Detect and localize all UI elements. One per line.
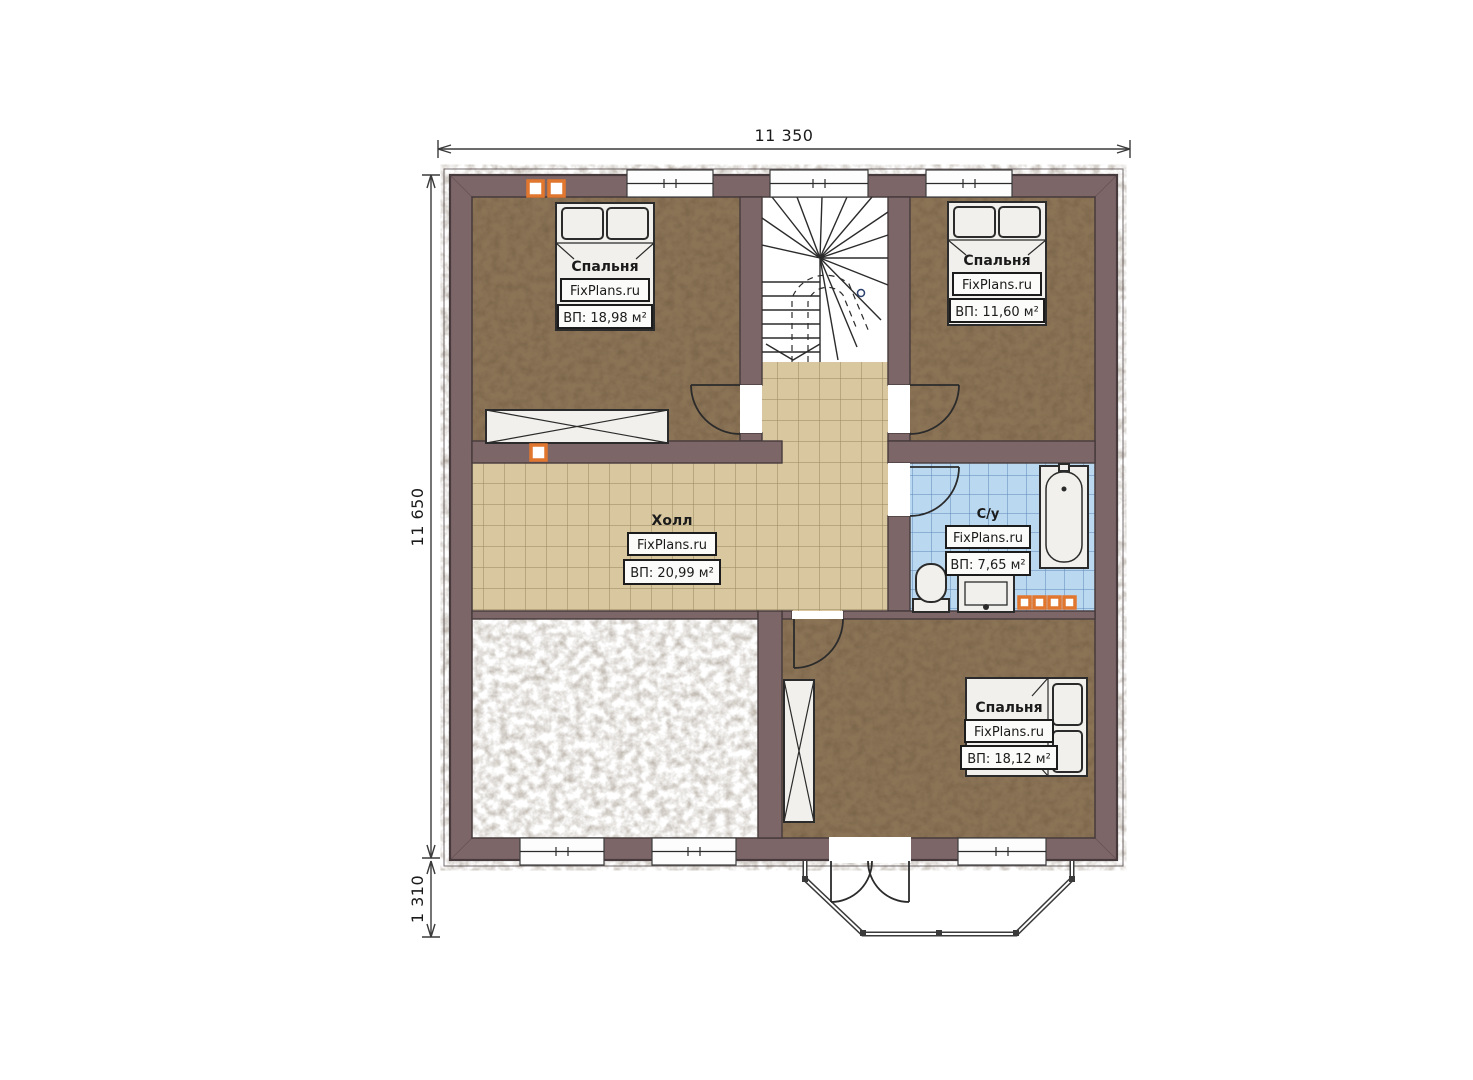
room-watermark: FixPlans.ru: [637, 538, 707, 553]
dimension-top-label: 11 350: [755, 126, 814, 145]
window-top-3: [926, 170, 1012, 197]
room-area: ВП: 11,60 м²: [955, 305, 1039, 320]
toilet-symbol: [913, 564, 949, 612]
bay-door-opening: [829, 837, 911, 863]
wardrobe-bottom-right: [784, 680, 814, 822]
room-name: Холл: [652, 513, 693, 529]
pillow: [562, 208, 603, 239]
bay-double-door: [831, 861, 909, 902]
pillow: [954, 207, 995, 237]
window-top-2: [770, 170, 868, 197]
dimension-left-label: 11 650: [408, 488, 427, 547]
room-area: ВП: 20,99 м²: [630, 566, 714, 581]
room-area: ВП: 18,12 м²: [967, 752, 1051, 767]
window-bottom-3: [958, 838, 1046, 865]
room-name: С/у: [977, 507, 1000, 522]
label-bedroom-top-left: Спальня FixPlans.ru ВП: 18,98 м²: [558, 259, 652, 328]
pillow: [607, 208, 648, 239]
vent-icon: [531, 445, 546, 460]
window-top-1: [627, 170, 713, 197]
staircase-floor: [762, 197, 888, 362]
stair-newel-marker: [858, 290, 865, 297]
dimension-bottom-label: 1 310: [408, 875, 427, 923]
window-bottom-1: [520, 838, 604, 865]
room-name: Спальня: [963, 253, 1030, 269]
vent-icon: [528, 181, 543, 196]
room-watermark: FixPlans.ru: [974, 725, 1044, 740]
room-area: ВП: 18,98 м²: [563, 311, 647, 326]
pillow: [1053, 684, 1082, 725]
room-area: ВП: 7,65 м²: [950, 558, 1025, 573]
dimension-top: 11 350: [438, 126, 1130, 158]
bathtub-tap: [1059, 464, 1069, 471]
floor-plan-page: Спальня FixPlans.ru ВП: 18,98 м² Спальня…: [0, 0, 1473, 1080]
wardrobe-top-left: [486, 410, 668, 443]
dimension-left: 11 650: [408, 175, 440, 858]
room-watermark: FixPlans.ru: [953, 531, 1023, 546]
sink-symbol: [958, 575, 1014, 612]
room-watermark: FixPlans.ru: [962, 278, 1032, 293]
room-watermark: FixPlans.ru: [570, 284, 640, 299]
room-name: Спальня: [571, 259, 638, 275]
label-bedroom-top-right: Спальня FixPlans.ru ВП: 11,60 м²: [950, 253, 1044, 322]
vent-icon: [549, 181, 564, 196]
floor-plan: Спальня FixPlans.ru ВП: 18,98 м² Спальня…: [0, 0, 1473, 1080]
bathtub-symbol: [1040, 464, 1088, 568]
dimension-bottom-left: 1 310: [408, 861, 440, 937]
bay-posts: [802, 876, 1075, 936]
room-name: Спальня: [975, 700, 1042, 716]
pillow: [999, 207, 1040, 237]
window-bottom-2: [652, 838, 736, 865]
